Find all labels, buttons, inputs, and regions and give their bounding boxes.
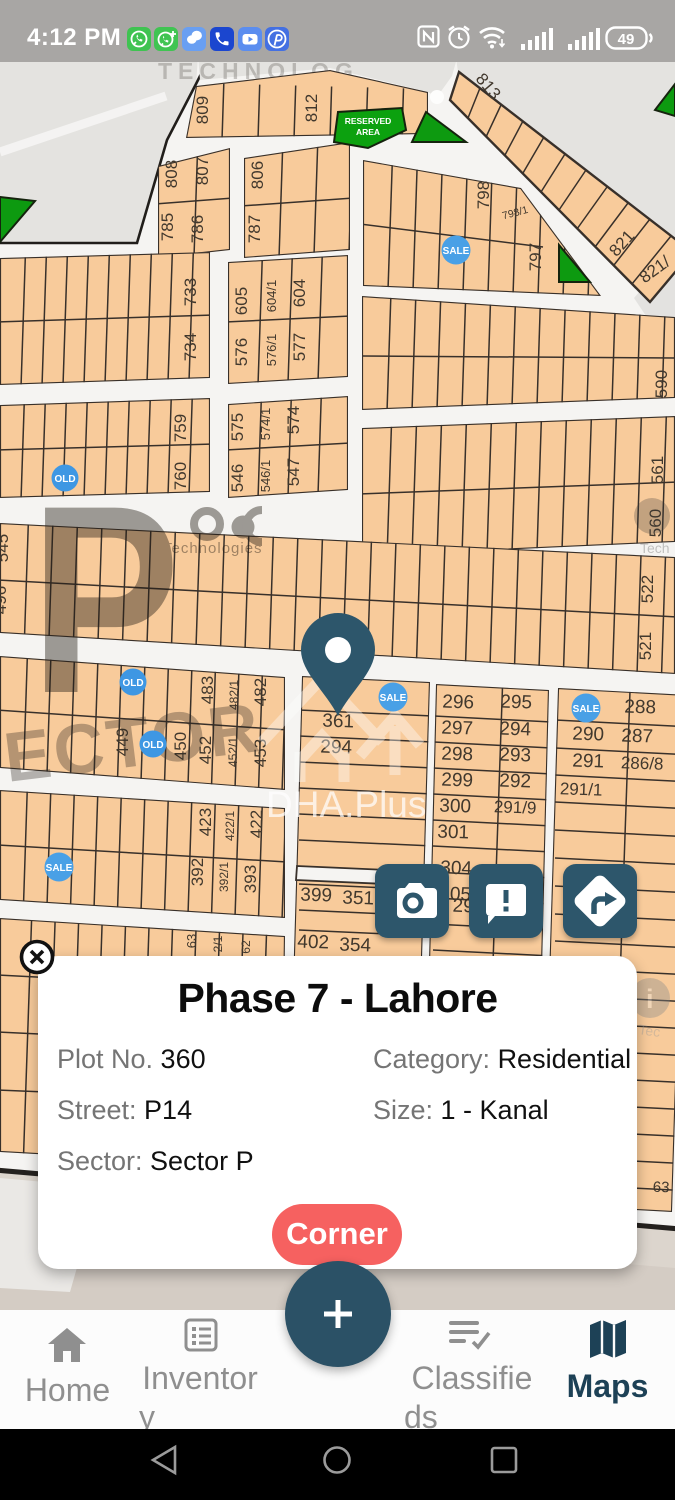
svg-text:392/1: 392/1 <box>217 862 231 892</box>
svg-text:785: 785 <box>158 213 177 241</box>
svg-text:OLD: OLD <box>54 474 75 485</box>
svg-text:733: 733 <box>181 278 200 306</box>
svg-text:806: 806 <box>248 161 267 189</box>
svg-text:422/1: 422/1 <box>223 811 237 841</box>
svg-text:354: 354 <box>339 934 372 956</box>
svg-text:293: 293 <box>499 744 531 766</box>
svg-text:295: 295 <box>500 691 532 713</box>
svg-text:496: 496 <box>0 586 10 614</box>
svg-text:294: 294 <box>499 718 532 740</box>
svg-text:576: 576 <box>232 338 251 366</box>
svg-text:SALE: SALE <box>46 863 73 874</box>
svg-text:734: 734 <box>181 333 200 361</box>
svg-text:63: 63 <box>653 1179 670 1197</box>
svg-text:298: 298 <box>441 743 473 765</box>
svg-text:809: 809 <box>193 96 212 124</box>
svg-text:DHA.Plus: DHA.Plus <box>266 784 426 825</box>
svg-text:291/1: 291/1 <box>560 779 603 799</box>
svg-text:OLD: OLD <box>142 740 163 751</box>
svg-text:351: 351 <box>342 887 374 909</box>
svg-text:2/1: 2/1 <box>211 935 225 952</box>
svg-text:Tec: Tec <box>638 1021 662 1040</box>
svg-text:49: 49 <box>618 31 635 48</box>
svg-text:604/1: 604/1 <box>264 280 279 313</box>
svg-text:288: 288 <box>624 696 656 718</box>
svg-text:290: 290 <box>572 723 604 745</box>
svg-text:SALE: SALE <box>380 693 407 704</box>
svg-text:296: 296 <box>442 691 474 713</box>
svg-text:605: 605 <box>232 287 251 315</box>
svg-text:546: 546 <box>228 464 247 492</box>
svg-text:574: 574 <box>284 406 303 434</box>
svg-text:521: 521 <box>636 632 655 660</box>
svg-text:522: 522 <box>638 575 657 603</box>
svg-text:787: 787 <box>245 215 264 243</box>
svg-text:RESERVED: RESERVED <box>345 116 392 126</box>
svg-text:577: 577 <box>290 333 309 361</box>
svg-text:291: 291 <box>572 750 604 772</box>
svg-text:545: 545 <box>0 534 12 562</box>
svg-text:797: 797 <box>526 243 545 271</box>
svg-text:286/8: 286/8 <box>621 753 664 773</box>
svg-text:301: 301 <box>437 821 469 843</box>
svg-text:62: 62 <box>239 940 253 954</box>
svg-text:291/9: 291/9 <box>494 797 537 817</box>
svg-text:808: 808 <box>162 160 181 188</box>
svg-text:287: 287 <box>621 725 653 747</box>
svg-text:576/1: 576/1 <box>264 334 279 367</box>
svg-text:292: 292 <box>499 770 531 792</box>
svg-text:575: 575 <box>228 413 247 441</box>
svg-text:393: 393 <box>241 865 260 893</box>
svg-text:Tech: Tech <box>640 540 670 556</box>
svg-text:300: 300 <box>439 795 471 817</box>
svg-text:546/1: 546/1 <box>258 460 273 493</box>
svg-text:786: 786 <box>188 215 207 243</box>
svg-text:i: i <box>646 984 654 1014</box>
svg-text:590: 590 <box>652 370 671 398</box>
svg-text:423: 423 <box>196 808 215 836</box>
svg-text:399: 399 <box>300 884 332 906</box>
svg-text:422: 422 <box>247 810 266 838</box>
svg-text:807: 807 <box>193 157 212 185</box>
svg-text:SALE: SALE <box>573 704 600 715</box>
svg-text:AREA: AREA <box>356 127 380 137</box>
svg-text:63: 63 <box>184 934 199 948</box>
svg-text:759: 759 <box>171 414 190 442</box>
svg-text:547: 547 <box>284 458 303 486</box>
svg-text:299: 299 <box>441 769 473 791</box>
svg-text:392: 392 <box>188 858 207 886</box>
svg-text:402: 402 <box>297 931 329 953</box>
svg-text:OLD: OLD <box>122 678 143 689</box>
svg-text:561: 561 <box>648 456 667 484</box>
svg-text:812: 812 <box>302 94 321 122</box>
svg-text:798: 798 <box>474 181 493 209</box>
svg-text:604: 604 <box>290 279 309 307</box>
svg-text:SALE: SALE <box>443 246 470 257</box>
svg-text:Technologies: Technologies <box>163 540 263 557</box>
svg-text:297: 297 <box>441 717 473 739</box>
svg-text:574/1: 574/1 <box>258 408 273 441</box>
